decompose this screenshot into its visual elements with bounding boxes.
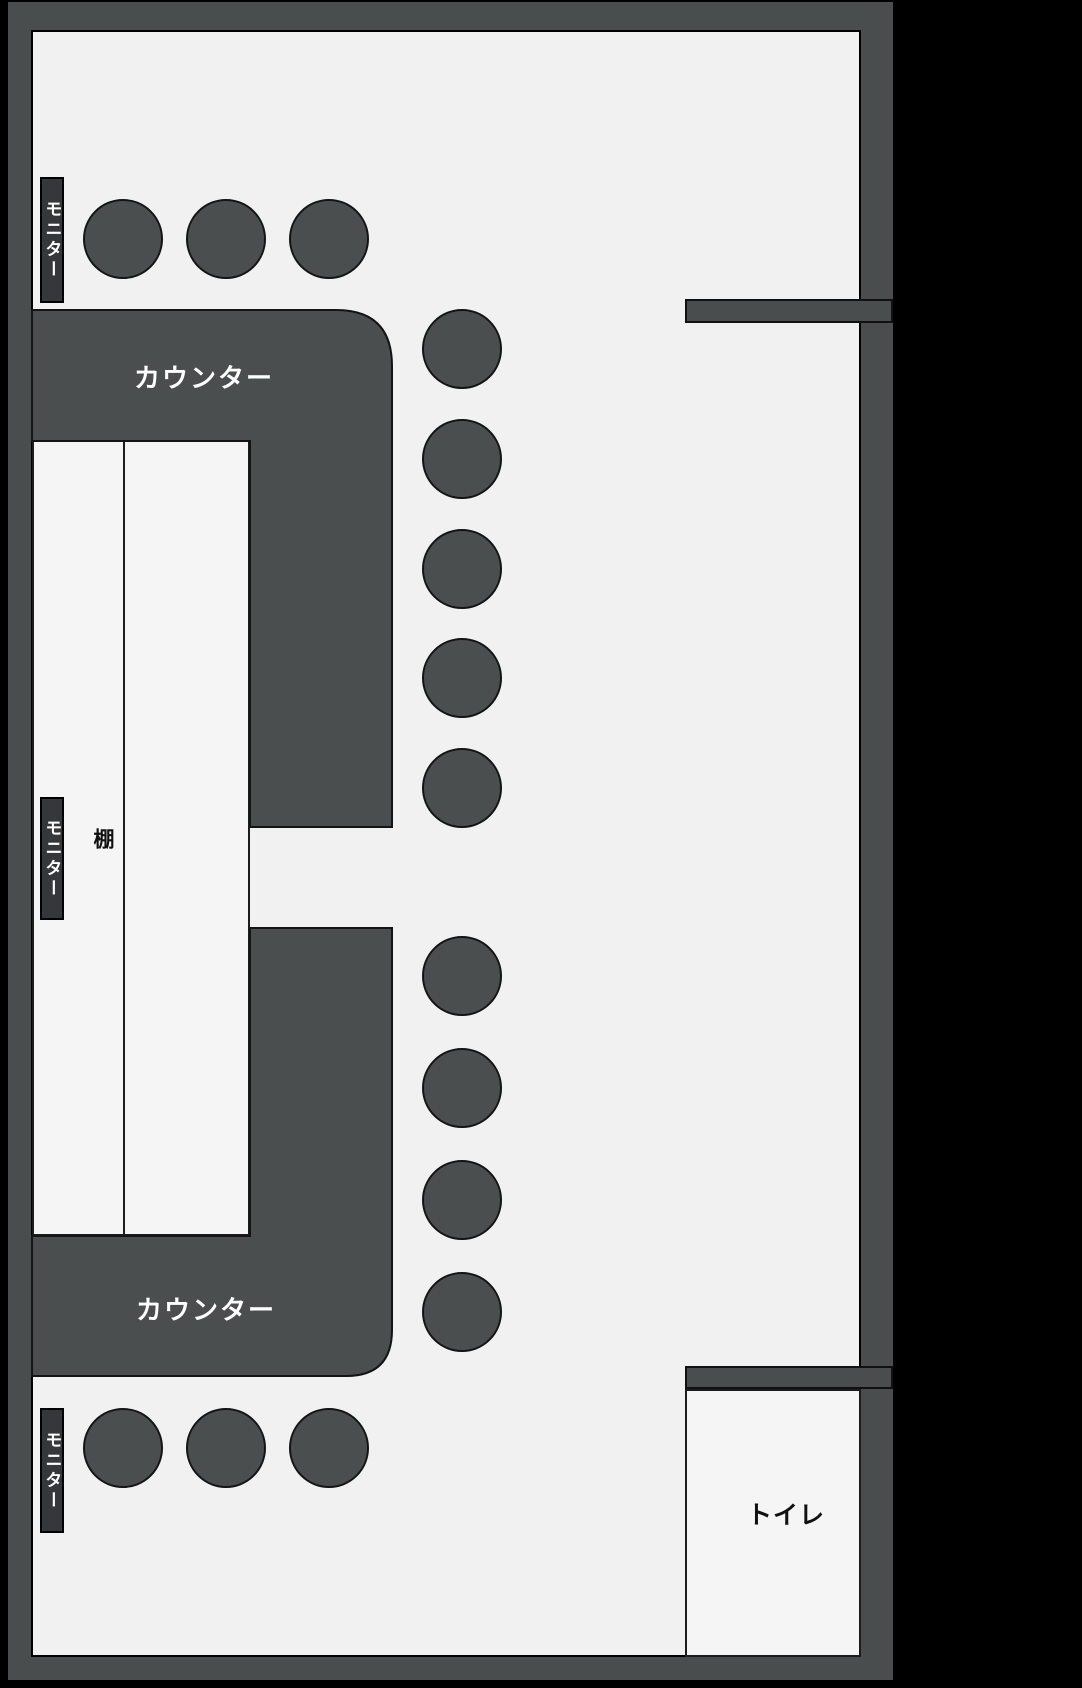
monitor-strip: モニター <box>40 177 64 303</box>
counter-top-label: カウンター <box>134 365 274 391</box>
toilet-label: トイレ <box>747 1504 825 1529</box>
monitor-strip: モニター <box>40 1408 64 1533</box>
seat-circle <box>422 309 502 389</box>
seat-circle <box>186 199 266 279</box>
seat-circle <box>422 936 502 1016</box>
shelf-label: 棚 <box>94 830 115 851</box>
shelf-area <box>32 440 250 1236</box>
seat-circle <box>422 1160 502 1240</box>
seat-circle <box>289 199 369 279</box>
seat-circle <box>422 1048 502 1128</box>
seat-circle <box>422 529 502 609</box>
monitor-strip: モニター <box>40 797 64 920</box>
partition-wall <box>685 299 893 323</box>
seat-circle <box>186 1408 266 1488</box>
partition-wall <box>685 1366 893 1389</box>
seat-circle <box>289 1408 369 1488</box>
seat-circle <box>422 748 502 828</box>
seat-circle <box>422 419 502 499</box>
floor-plan-canvas: カウンター カウンター 棚 トイレ モニターモニターモニター <box>0 0 1082 1688</box>
counter-bottom-label: カウンター <box>136 1297 276 1323</box>
shelf-divider-line <box>123 442 125 1234</box>
seat-circle <box>83 1408 163 1488</box>
seat-circle <box>422 1272 502 1352</box>
seat-circle <box>422 638 502 718</box>
seat-circle <box>83 199 163 279</box>
